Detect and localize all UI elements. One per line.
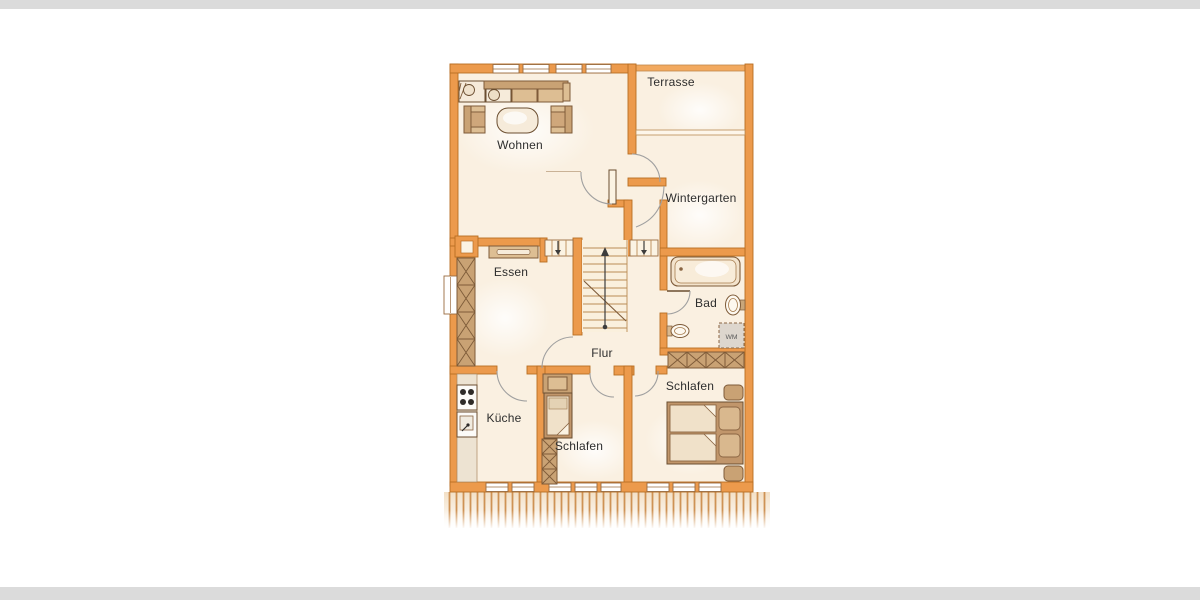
window-top-1 (493, 65, 519, 74)
scan-strip-bottom (0, 587, 1200, 600)
nightstand-top (724, 385, 743, 400)
room-label-wintergarten: Wintergarten (665, 191, 736, 205)
window-bottom-6 (647, 483, 669, 492)
room-label-kueche: Küche (486, 411, 521, 425)
stair-steps-left (545, 240, 573, 256)
window-bottom-5 (601, 483, 621, 492)
floorplan-drawing: WM (0, 0, 1200, 600)
bathtub (671, 257, 740, 286)
window-top-2 (523, 65, 549, 74)
window-top-3 (556, 65, 582, 74)
double-bed (667, 402, 743, 464)
washing-machine: WM (719, 323, 744, 348)
room-label-essen: Essen (494, 265, 528, 279)
room-label-schlafen-small: Schlafen (555, 439, 603, 453)
window-bottom-1 (486, 483, 508, 492)
room-label-flur: Flur (591, 346, 612, 360)
chimney (455, 236, 478, 257)
single-bed (544, 393, 572, 438)
sofa (484, 81, 570, 102)
kitchen-fixtures (457, 374, 477, 482)
stair-steps-right (630, 240, 658, 256)
washing-machine-label: WM (725, 334, 737, 341)
window-bottom-4 (575, 483, 597, 492)
armchair-right (551, 106, 572, 133)
cabinet (543, 374, 572, 393)
chaise (459, 81, 485, 102)
window-bottom-2 (512, 483, 534, 492)
sideboard (489, 246, 538, 258)
window-top-4 (586, 65, 611, 74)
window-bottom-8 (699, 483, 721, 492)
window-bottom-7 (673, 483, 695, 492)
roof-fringe (444, 492, 770, 529)
floorplan-page: WM (0, 0, 1200, 600)
toilet (667, 325, 689, 338)
room-label-bad: Bad (695, 296, 717, 310)
kitchen-sink (457, 412, 477, 437)
stove (457, 385, 477, 410)
wardrobe-main (668, 352, 744, 368)
window-left (444, 276, 457, 314)
room-label-terrasse: Terrasse (647, 75, 695, 89)
cupboard-column (457, 258, 475, 366)
room-label-schlafen-main: Schlafen (666, 379, 714, 393)
glass-divider (636, 130, 745, 135)
coffee-table (497, 108, 538, 133)
room-label-wohnen: Wohnen (497, 138, 543, 152)
scan-strip-top (0, 0, 1200, 9)
armchair-left (464, 106, 485, 133)
nightstand-bottom (724, 466, 743, 481)
